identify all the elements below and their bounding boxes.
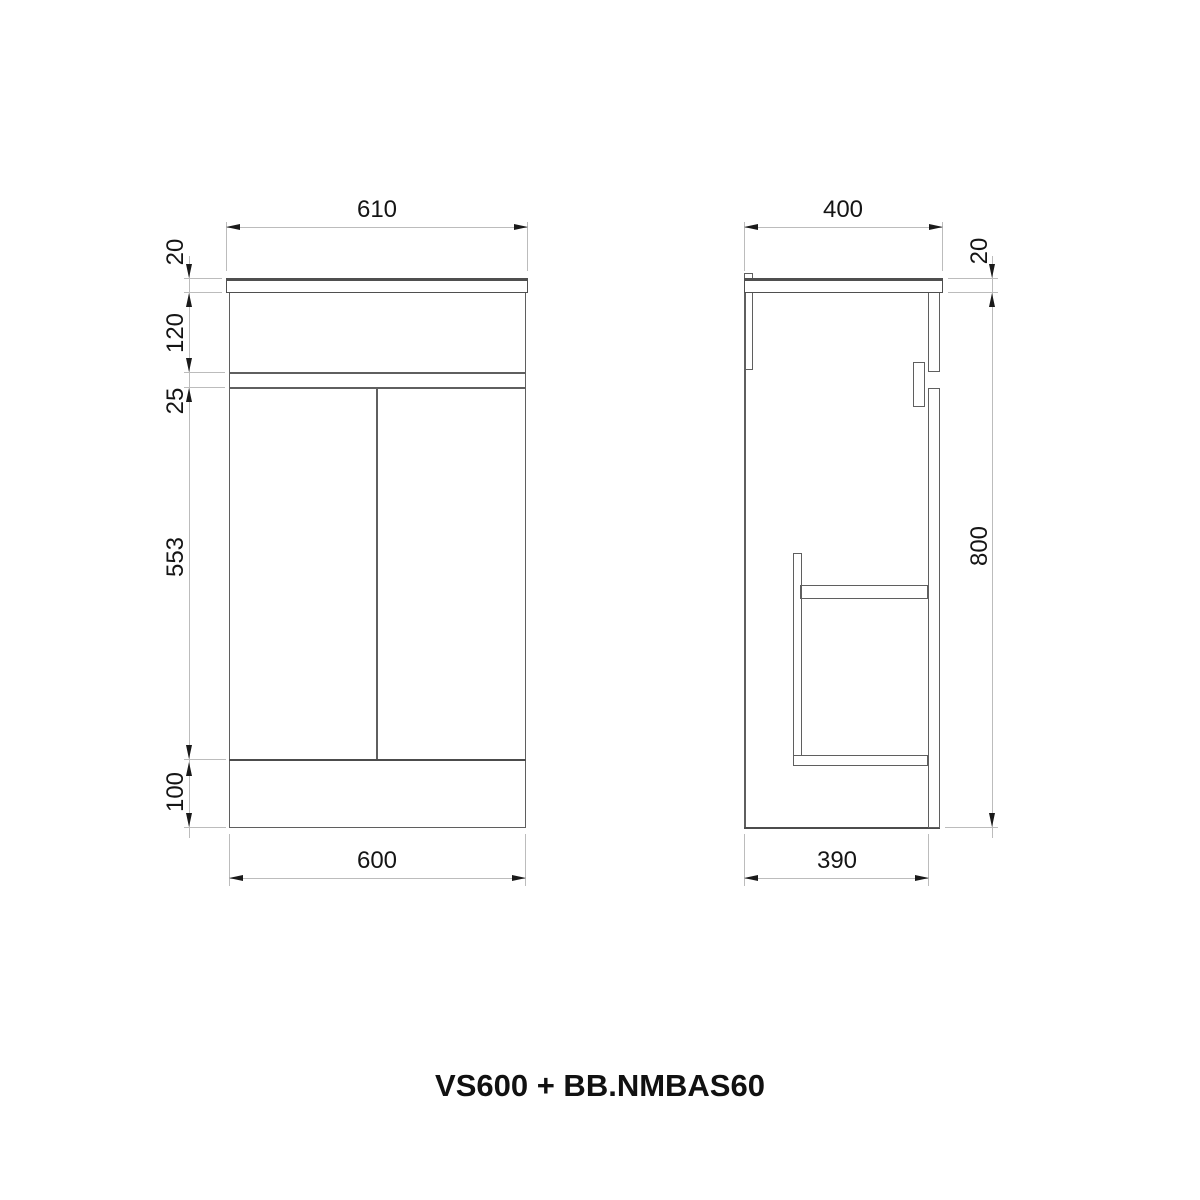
- dim-label-600: 600: [327, 848, 427, 874]
- dim-arrow-left: [226, 224, 240, 230]
- extension-line: [945, 827, 998, 828]
- front-countertop: [226, 278, 528, 293]
- extension-line: [184, 759, 226, 760]
- dim-arrow-right: [514, 224, 528, 230]
- dim-label-400: 400: [793, 197, 893, 223]
- side-bottom-edge: [744, 827, 940, 829]
- dim-label-20: 20: [163, 212, 189, 292]
- side-door-front-panel: [744, 293, 753, 370]
- side-back-panel-lower: [928, 388, 940, 828]
- extension-line: [184, 278, 222, 279]
- extension-line: [184, 372, 225, 373]
- front-plinth-top-line: [229, 759, 526, 761]
- front-door-divider-line: [376, 388, 378, 760]
- front-door-top-line: [229, 387, 526, 389]
- extension-line: [184, 827, 226, 828]
- dim-arrow: [989, 813, 995, 827]
- side-shelf-lower: [793, 755, 928, 766]
- dim-label-553: 553: [163, 517, 189, 597]
- product-code-caption: VS600 + BB.NMBAS60: [0, 1068, 1200, 1104]
- dim-label-390: 390: [787, 848, 887, 874]
- dim-arrow-right: [915, 875, 929, 881]
- dimension-line: [229, 878, 526, 879]
- dim-label-25: 25: [163, 361, 189, 441]
- dim-arrow-right: [929, 224, 943, 230]
- dim-arrow-right: [512, 875, 526, 881]
- dim-arrow-left: [744, 224, 758, 230]
- side-front-outline: [744, 293, 746, 828]
- dimension-line: [744, 227, 943, 228]
- dim-label-100: 100: [163, 752, 189, 832]
- dim-arrow-left: [229, 875, 243, 881]
- front-apron-bottom-line: [229, 372, 526, 374]
- technical-drawing: 610 20 120 25 553 100 600: [0, 0, 1200, 1200]
- side-countertop: [744, 278, 943, 293]
- side-internal-divider: [793, 553, 802, 756]
- dim-label-20-side: 20: [967, 211, 993, 291]
- side-shelf-upper: [800, 585, 928, 599]
- dim-label-800: 800: [967, 506, 993, 586]
- side-back-panel-upper: [928, 293, 940, 372]
- dim-label-610: 610: [327, 197, 427, 223]
- side-wall-bracket: [913, 362, 925, 407]
- dim-arrow: [989, 293, 995, 307]
- dimension-line: [744, 878, 929, 879]
- dimension-line: [226, 227, 528, 228]
- dim-arrow-left: [744, 875, 758, 881]
